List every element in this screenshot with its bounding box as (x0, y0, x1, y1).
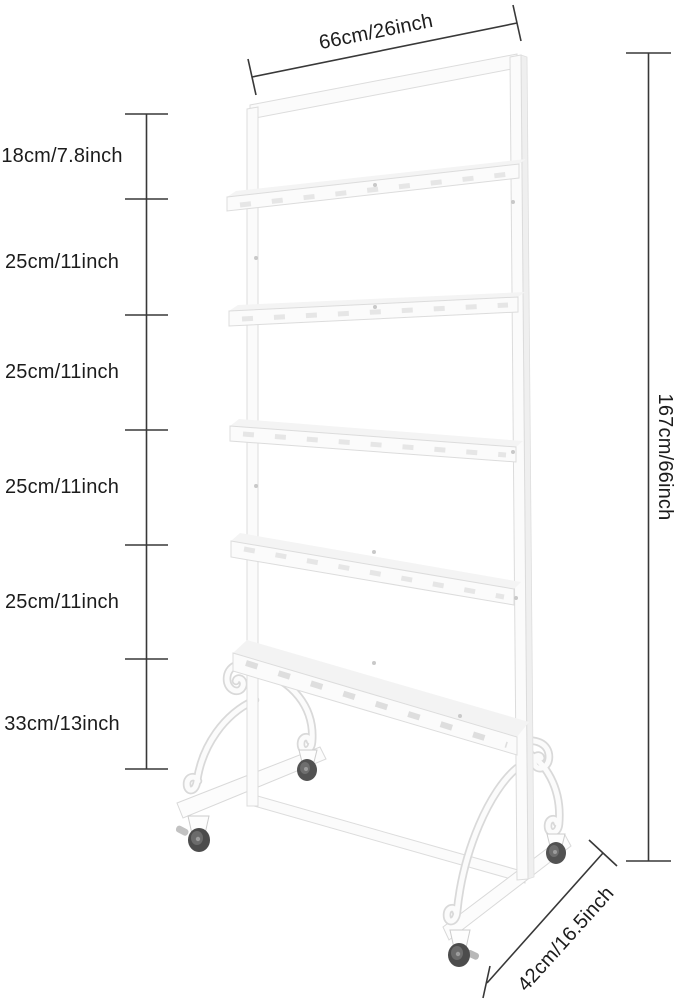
rack-shelf-2 (229, 292, 525, 326)
caster-wheel-rear-right (546, 834, 566, 864)
rack-shelf-3 (230, 419, 523, 462)
rack-shelf-4 (231, 533, 521, 605)
section-dimension-label-6: 33cm/13inch (4, 712, 120, 736)
section-dimension-label-2: 25cm/11inch (5, 250, 119, 274)
section-dimension-label-5: 25cm/11inch (5, 590, 119, 614)
height-dimension-label: 167cm/66inch (653, 394, 677, 521)
section-dimension-label-4: 25cm/11inch (5, 475, 119, 499)
caster-wheel-front-right (448, 930, 480, 967)
product-dimension-diagram: 66cm/26inch 18cm/7.8inch 25cm/11inch 25c… (0, 0, 679, 1003)
rack-shelf-bottom (233, 640, 529, 755)
frame-top-bar (250, 54, 517, 119)
frame-post-left (247, 107, 258, 806)
section-dimension-label-3: 25cm/11inch (5, 360, 119, 384)
depth-tick-far (589, 840, 617, 866)
caster-wheel-front-left (175, 816, 210, 852)
caster-wheel-rear-left (297, 750, 317, 781)
rack-shelves (227, 159, 529, 755)
section-dimension-line (125, 114, 168, 769)
dimension-annotations (125, 5, 671, 998)
section-dimension-label-1: 18cm/7.8inch (1, 144, 122, 168)
